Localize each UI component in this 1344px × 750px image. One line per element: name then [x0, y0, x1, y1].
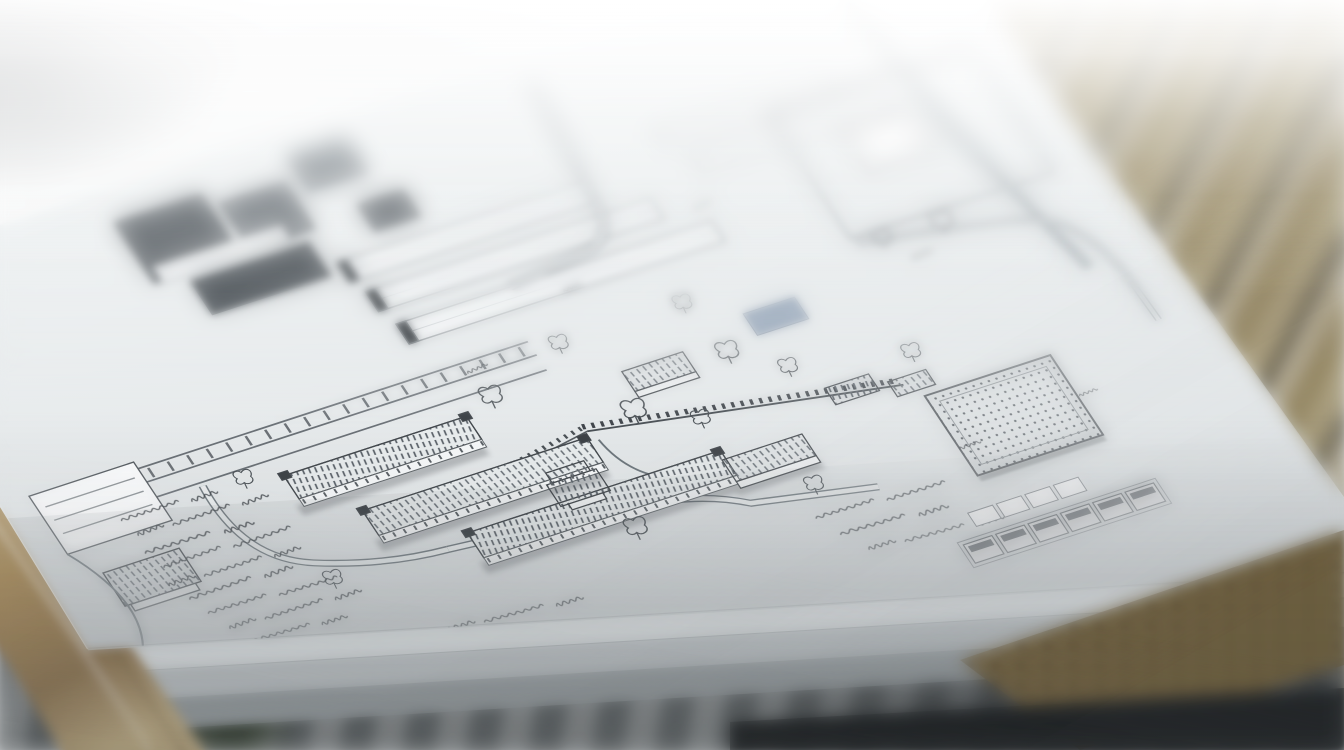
plan-sheet-paper — [0, 0, 1344, 649]
dof-blur-bottom-right — [0, 0, 1344, 750]
paper-stack-edges — [0, 0, 1344, 750]
dotted-plaza — [925, 355, 1107, 481]
legend-strip — [943, 457, 1172, 568]
dof-blur-bottom-left — [0, 0, 1344, 750]
scribble-annotations — [52, 130, 1154, 750]
battlement-wall — [419, 333, 904, 531]
white-haze-top — [0, 0, 1344, 750]
left-cluster — [29, 462, 238, 654]
colonnade-lines — [68, 342, 547, 520]
top-halls — [320, 60, 940, 349]
aerial-map-right — [0, 0, 1344, 750]
tan-strip-bottom-left — [0, 462, 215, 750]
tonal-grade — [0, 0, 1344, 750]
plan-sheet — [0, 0, 1344, 750]
tilt-shift-blueprint-photo — [0, 0, 1344, 750]
dark-slab-bottom-right — [0, 0, 1344, 750]
aerial-map-bottom — [0, 0, 1344, 750]
background-fog — [0, 0, 1344, 750]
sheet-near-edge-shade — [0, 430, 1344, 649]
focus-band-halls — [271, 275, 961, 616]
roads — [38, 0, 1200, 668]
dof-blur-top-strong — [0, 0, 1344, 750]
vignette — [0, 0, 1344, 750]
dof-blur-top-soft — [0, 0, 1344, 750]
upper-courtyard — [767, 46, 1054, 239]
top-blocks — [108, 130, 438, 325]
trees — [213, 207, 1080, 648]
tree-speckles-bottom-right — [0, 0, 1344, 750]
sketch-content — [0, 0, 1261, 750]
